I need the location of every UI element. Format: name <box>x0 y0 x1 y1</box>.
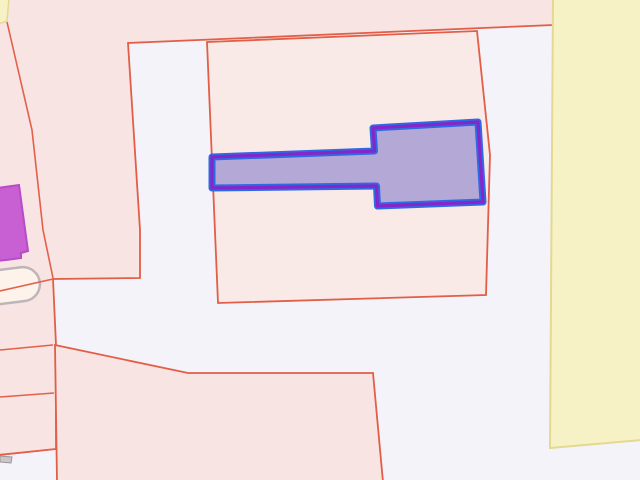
map-canvas[interactable] <box>0 0 640 480</box>
zone-yellow-right[interactable] <box>550 0 640 448</box>
building-gray-small[interactable] <box>0 456 12 463</box>
map-viewport[interactable] <box>0 0 640 480</box>
zone-yellow-corner[interactable] <box>0 0 9 24</box>
